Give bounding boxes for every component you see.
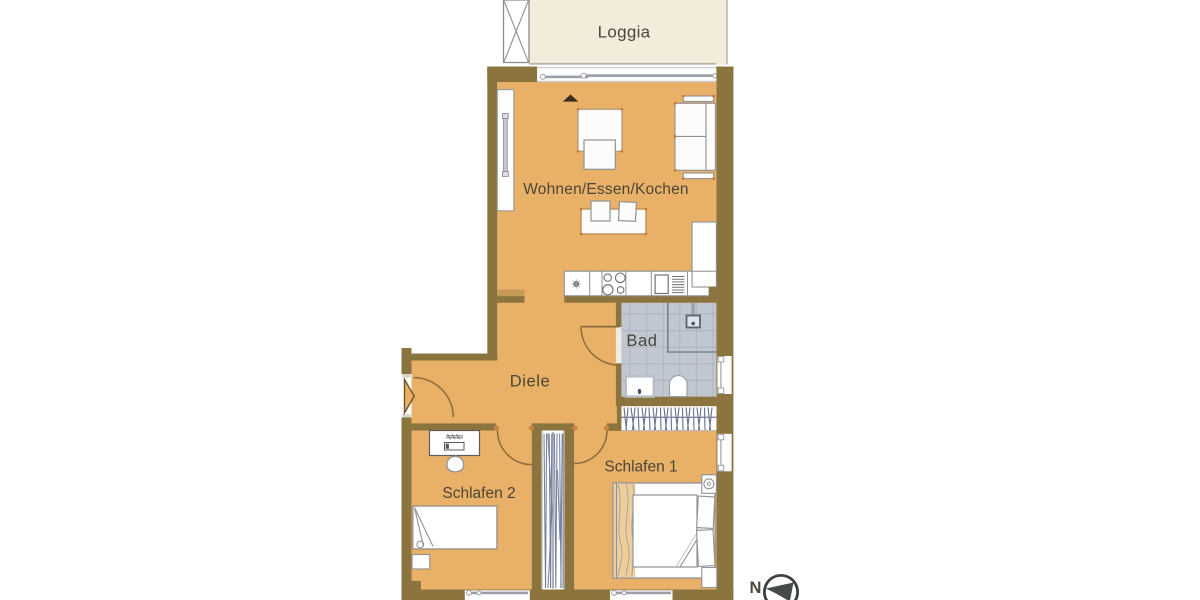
svg-text:Diele: Diele xyxy=(510,373,551,391)
svg-text:Schlafen 2: Schlafen 2 xyxy=(442,485,515,502)
svg-text:N: N xyxy=(750,579,762,597)
svg-text:Schlafen 1: Schlafen 1 xyxy=(604,459,677,476)
svg-text:Bad: Bad xyxy=(626,332,657,350)
svg-text:Wohnen/Essen/Kochen: Wohnen/Essen/Kochen xyxy=(523,181,689,198)
svg-text:Loggia: Loggia xyxy=(598,23,651,42)
